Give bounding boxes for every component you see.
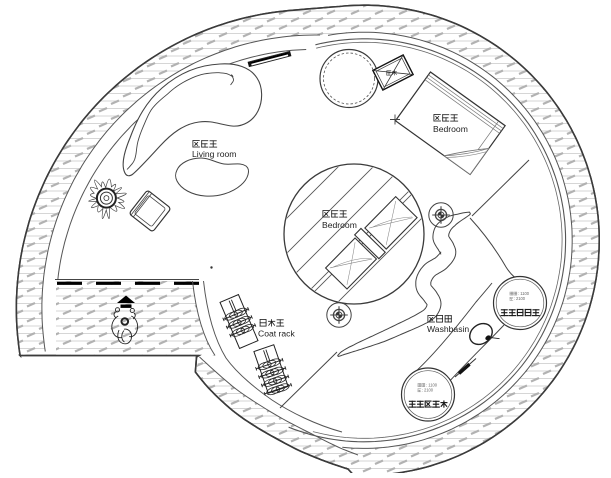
svg-text:Bedroom: Bedroom <box>433 124 468 134</box>
svg-text:Bedroom: Bedroom <box>322 220 357 230</box>
svg-text:Washbasin: Washbasin <box>427 324 469 334</box>
svg-text:Coat rack: Coat rack <box>258 329 295 339</box>
svg-text:Living room: Living room <box>192 149 236 159</box>
svg-text:: 2100: : 2100 <box>514 296 526 301</box>
svg-text:: 2100: : 2100 <box>422 388 434 393</box>
